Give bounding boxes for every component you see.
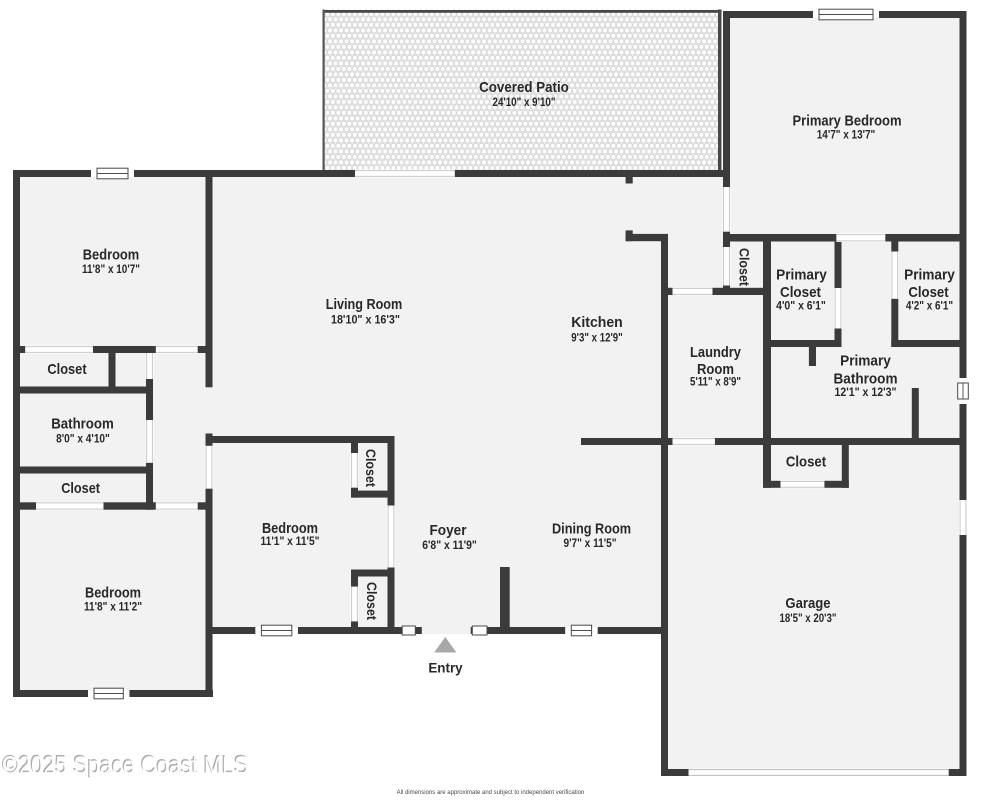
svg-text:Foyer: Foyer: [430, 522, 467, 539]
svg-text:Closet: Closet: [737, 248, 752, 286]
svg-text:11'8" x 11'2": 11'8" x 11'2": [84, 600, 142, 614]
svg-text:18'5" x 20'3": 18'5" x 20'3": [780, 611, 837, 625]
svg-text:Closet: Closet: [364, 582, 379, 620]
svg-text:14'7" x 13'7": 14'7" x 13'7": [817, 128, 876, 142]
svg-text:9'3" x 12'9": 9'3" x 12'9": [571, 331, 623, 345]
svg-text:Garage: Garage: [785, 595, 830, 612]
svg-text:8'0" x 4'10": 8'0" x 4'10": [56, 432, 110, 446]
svg-text:Bedroom: Bedroom: [83, 247, 140, 264]
svg-text:Primary: Primary: [776, 267, 827, 284]
svg-text:6'8" x 11'9": 6'8" x 11'9": [422, 538, 477, 552]
svg-text:Kitchen: Kitchen: [571, 314, 623, 331]
svg-text:Closet: Closet: [47, 361, 86, 378]
svg-text:Primary: Primary: [840, 353, 891, 370]
svg-text:5'11" x 8'9": 5'11" x 8'9": [690, 375, 741, 389]
svg-text:9'7" x 11'5": 9'7" x 11'5": [564, 536, 617, 550]
svg-text:11'1" x 11'5": 11'1" x 11'5": [261, 534, 320, 548]
svg-text:Closet: Closet: [363, 449, 378, 487]
svg-text:Closet: Closet: [61, 480, 100, 497]
svg-text:11'8" x 10'7": 11'8" x 10'7": [82, 262, 140, 276]
svg-text:Dining Room: Dining Room: [552, 521, 631, 538]
svg-text:Laundry: Laundry: [690, 344, 742, 361]
svg-text:Entry: Entry: [428, 660, 462, 676]
svg-text:4'0" x 6'1": 4'0" x 6'1": [776, 299, 826, 313]
svg-text:4'2" x 6'1": 4'2" x 6'1": [906, 299, 953, 313]
svg-text:24'10" x 9'10": 24'10" x 9'10": [493, 95, 556, 109]
svg-text:Closet: Closet: [786, 454, 826, 471]
svg-text:12'1" x 12'3": 12'1" x 12'3": [835, 385, 897, 399]
svg-text:Covered Patio: Covered Patio: [479, 79, 569, 96]
svg-text:18'10" x 16'3": 18'10" x 16'3": [331, 313, 400, 327]
svg-text:Bathroom: Bathroom: [51, 416, 114, 433]
svg-text:Primary: Primary: [904, 267, 955, 284]
svg-text:Living Room: Living Room: [326, 296, 403, 313]
